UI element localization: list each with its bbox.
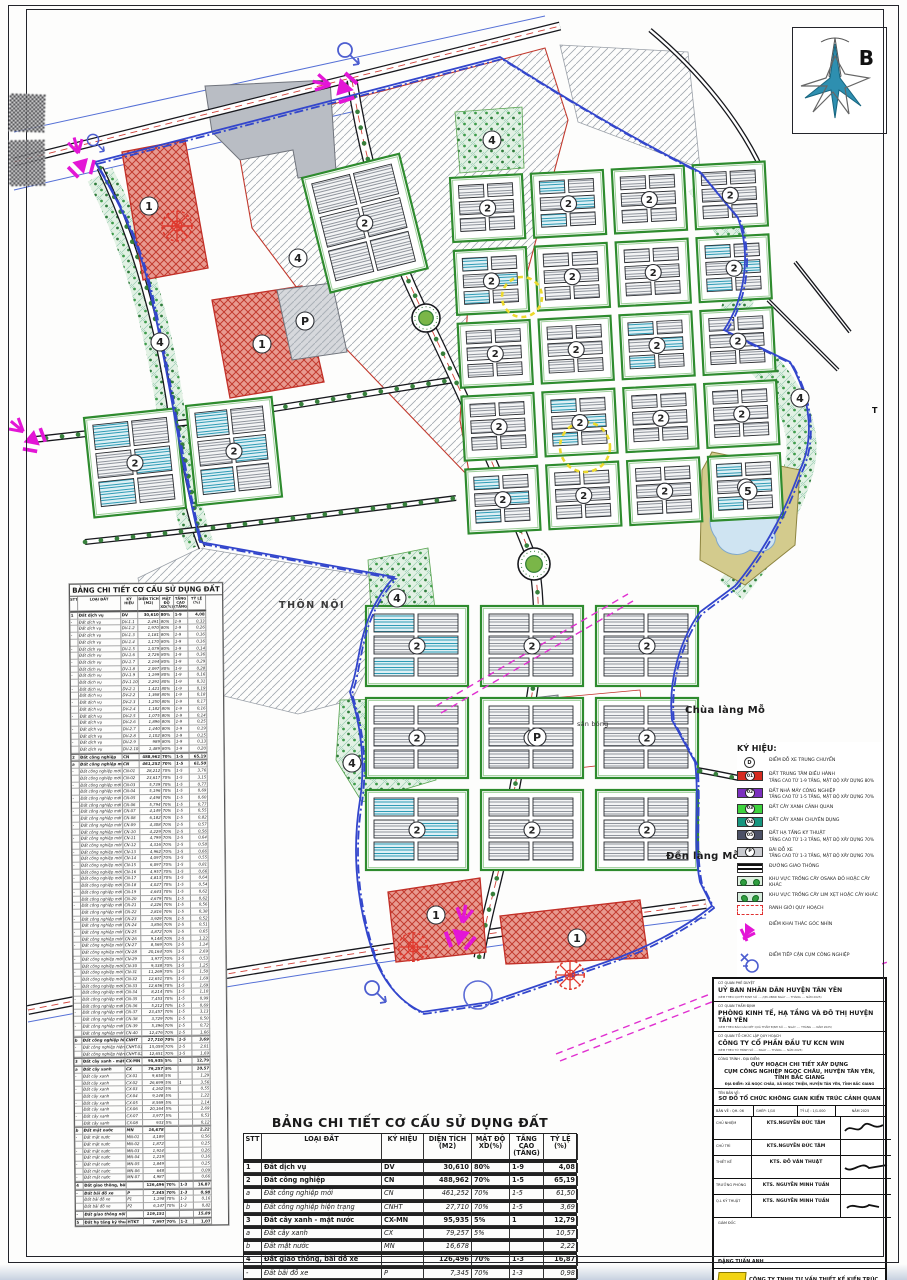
- drawing-meta-row: BẢN VẼ : QH- 06GHÉP: 1/10TỶ LỆ : 1/1.000…: [714, 1106, 885, 1117]
- svg-text:4: 4: [488, 134, 496, 147]
- symbol-wheel: [556, 961, 585, 990]
- legend-label: BÃI ĐỖ XE: [769, 848, 793, 853]
- red-swatch: 01: [737, 771, 763, 781]
- staff-role: Q.L KỸ THUẬT: [714, 1195, 752, 1218]
- col-header: STT: [244, 1134, 262, 1160]
- col-header: KÝ HIỆU: [382, 1134, 424, 1160]
- planning-org-name: CÔNG TY CỔ PHẦN ĐẦU TƯ KCN WIN: [718, 1040, 881, 1047]
- svg-text:2: 2: [361, 219, 368, 230]
- approval-agency-name: UỶ BAN NHÂN DÂN HUYỆN TÂN YÊN: [718, 987, 881, 994]
- table-row: 1Đất dịch vụDV30,61080%1-94,08: [243, 1162, 577, 1175]
- staff-name: KTS.NGUYỄN ĐỨC TÂM: [752, 1140, 841, 1156]
- zone-badge: 2: [487, 346, 503, 362]
- scan-mark: [8, 93, 45, 132]
- project-line2: CỤM CÔNG NGHIỆP NGỌC CHÂU, HUYỆN TÂN YÊN…: [718, 1069, 881, 1081]
- viewpt-icon: [737, 921, 763, 943]
- zone-badge: 2: [226, 443, 242, 459]
- svg-text:2: 2: [529, 641, 536, 652]
- summary-rows: 1Đất dịch vụDV30,61080%1-94,082Đất công …: [243, 1162, 577, 1280]
- compass-north-label: B: [859, 46, 874, 70]
- svg-text:2: 2: [499, 495, 506, 506]
- svg-text:2: 2: [492, 349, 499, 360]
- legend-item-d: DĐIỂM ĐỖ XE TRUNG CHUYỂN: [737, 757, 882, 768]
- access-icon: [737, 952, 763, 974]
- roundabout: [412, 304, 440, 332]
- svg-text:2: 2: [576, 418, 583, 429]
- purple-swatch: 02: [737, 788, 763, 798]
- zone-badge: 2: [645, 264, 661, 280]
- staff-name: KTS. NGUYỄN MINH TUẤN: [752, 1195, 841, 1218]
- zone-badge: P: [528, 728, 546, 746]
- zone-badge: 1: [568, 929, 586, 947]
- project-line3: ĐỊA ĐIỂM: XÃ NGỌC CHÂU, XÃ NGỌC THIỆN, H…: [718, 1082, 881, 1086]
- svg-text:4: 4: [393, 592, 401, 605]
- map-label: sân bóng: [577, 720, 609, 728]
- zone-badge: 2: [641, 192, 657, 208]
- svg-text:2: 2: [646, 195, 653, 206]
- legend-item-road: ĐƯỜNG GIAO THÔNG: [737, 863, 882, 873]
- zone-badge: 2: [480, 200, 496, 216]
- dark-swatch: 05: [737, 830, 763, 840]
- zone-badge: 2: [483, 273, 499, 289]
- gray-swatch: P: [737, 847, 763, 857]
- svg-text:2: 2: [565, 199, 572, 210]
- transit-stop-icon: D: [744, 757, 755, 768]
- legend-label: RANH GIỚI QUY HOẠCH: [769, 906, 824, 911]
- meta-cell: GHÉP: 1/10: [754, 1106, 798, 1116]
- zone-badge: 4: [388, 589, 406, 607]
- zone-badge: 4: [289, 249, 307, 267]
- svg-text:2: 2: [661, 487, 668, 498]
- legend-item-bound: RANH GIỚI QUY HOẠCH: [737, 905, 882, 915]
- appraisal-agency-name: PHÒNG KINH TẾ, HẠ TẦNG VÀ ĐÔ THỊ HUYỆN T…: [718, 1010, 881, 1024]
- legend-item-access: ĐIỂM TIẾP CẬN CỤM CÔNG NGHIỆP: [737, 952, 882, 974]
- company-logo: Đ: [715, 1272, 746, 1280]
- symbol-bus: [365, 981, 386, 1003]
- col-header: LOẠI ĐẤT: [262, 1134, 382, 1160]
- svg-text:4: 4: [294, 252, 302, 265]
- dots2-swatch: [737, 892, 763, 902]
- roundabout: [518, 548, 550, 580]
- scan-mark: [9, 140, 46, 187]
- svg-text:4: 4: [156, 336, 164, 349]
- zone-badge: 1: [140, 197, 158, 215]
- table-row: -Đất bãi đỗ xeP7,34570%1-30,98: [243, 1268, 577, 1280]
- zone-badge: 2: [572, 415, 588, 431]
- svg-text:1: 1: [258, 338, 266, 351]
- project-label: CÔNG TRÌNH - ĐỊA ĐIỂM:: [718, 1057, 881, 1061]
- zone-badge: 2: [639, 730, 655, 746]
- zone-badge: 2: [357, 215, 373, 231]
- svg-text:2: 2: [414, 641, 421, 652]
- col-header: TỶ LỆ (%): [188, 595, 206, 610]
- legend-label: ĐƯỜNG GIAO THÔNG: [769, 864, 819, 869]
- appraisal-agency-label: CƠ QUAN THẨM ĐỊNH: [718, 1004, 881, 1008]
- compass-rose-icon: [793, 28, 884, 130]
- drawing-title-label: TÊN BẢN VẼ:: [718, 1091, 881, 1095]
- zone-badge: 2: [409, 822, 425, 838]
- symbol-wheel: [162, 211, 192, 241]
- legend-label: ĐẤT HẠ TẦNG KỸ THUẬT: [769, 831, 825, 836]
- staff-name: KTS. NGUYỄN MINH TUẤN: [752, 1179, 841, 1195]
- svg-text:4: 4: [348, 757, 356, 770]
- bound-swatch: [737, 905, 763, 915]
- svg-text:2: 2: [738, 409, 745, 420]
- legend-label: ĐIỂM KHAI THÁC GÓC NHÌN: [769, 922, 832, 927]
- legend-item-red: 01ĐẤT TRUNG TÂM ĐIỀU HÀNHTẦNG CAO TỪ 1-9…: [737, 771, 882, 784]
- signature: [841, 1117, 891, 1140]
- svg-text:2: 2: [488, 276, 495, 287]
- landuse-detail-header: STTLOẠI ĐẤTKÝ HIỆUDIỆN TÍCH (M2)MẬT ĐỘ X…: [70, 595, 222, 611]
- svg-text:2: 2: [131, 458, 138, 469]
- landuse-summary-table: BẢNG CHI TIẾT CƠ CẤU SỬ DỤNG ĐẤT STTLOẠI…: [243, 1113, 577, 1280]
- col-header: KÝ HIỆU: [121, 596, 138, 611]
- legend-title: KÝ HIỆU:: [737, 744, 882, 753]
- symbol-wheel: [399, 933, 428, 962]
- legend-item-dark: 05ĐẤT HẠ TẦNG KỸ THUẬTTẦNG CAO TỪ 1-3 TẦ…: [737, 830, 882, 843]
- svg-text:2: 2: [496, 422, 503, 433]
- svg-text:1: 1: [573, 932, 581, 945]
- table-row: 2Đất công nghiệpCN488,96270%1-565,19: [243, 1175, 577, 1188]
- staff-role: CHỦ NHIỆM: [714, 1117, 752, 1140]
- svg-text:2: 2: [580, 491, 587, 502]
- legend-label: ĐIỂM ĐỖ XE TRUNG CHUYỂN: [769, 758, 835, 763]
- svg-text:2: 2: [644, 825, 651, 836]
- zone-badge: 1: [427, 906, 445, 924]
- appraisal-agency-note: (KÈM THEO BÁO CÁO KẾT QUẢ THẨM ĐỊNH SỐ .…: [718, 1025, 881, 1029]
- legend-item-purple: 02ĐẤT NHÀ MÁY CÔNG NGHIỆPTẦNG CAO TỪ 1-5…: [737, 788, 882, 801]
- zone-badge: 2: [409, 638, 425, 654]
- zone-badge: 2: [409, 730, 425, 746]
- signature: [841, 1140, 891, 1156]
- meta-cell: TỶ LỆ : 1/1.000: [798, 1106, 836, 1116]
- zone-badge: 2: [491, 419, 507, 435]
- zone-badge: 5: [739, 482, 757, 500]
- summary-header: STTLOẠI ĐẤTKÝ HIỆUDIỆN TÍCH (M2)MẬT ĐỘ X…: [243, 1133, 577, 1162]
- legend-item-dots2: KHU VỰC TRỒNG CÂY LIM XẸT HOẶC CÂY KHÁC: [737, 892, 882, 902]
- map-label: THÔN NỘI: [279, 599, 345, 611]
- svg-text:2: 2: [484, 203, 491, 214]
- zone-badge: 2: [649, 337, 665, 353]
- map-label: Chùa làng Mỗ: [685, 703, 765, 716]
- project-line1: QUY HOẠCH CHI TIẾT XÂY DỰNG: [718, 1062, 881, 1068]
- svg-text:1: 1: [145, 200, 153, 213]
- zone-badge: 2: [564, 269, 580, 285]
- table-row: bĐất công nghiệp hiện trạngCNHT27,71070%…: [243, 1202, 577, 1215]
- legend-label: ĐẤT CÂY XANH CẢNH QUAN: [769, 805, 833, 810]
- col-header: MẬT ĐỘ XD(%): [472, 1134, 510, 1160]
- svg-text:2: 2: [569, 272, 576, 283]
- svg-text:2: 2: [731, 264, 738, 275]
- staff-role: CHỦ TRÌ: [714, 1140, 752, 1156]
- col-header: DIỆN TÍCH (M2): [424, 1134, 472, 1160]
- approval-agency-note: (KÈM THEO QUYẾT ĐỊNH SỐ .... /QĐ-UBND NG…: [718, 995, 881, 999]
- zone-badge: P: [296, 312, 314, 330]
- legend-label: ĐIỂM TIẾP CẬN CỤM CÔNG NGHIỆP: [769, 953, 850, 958]
- zone-badge: 2: [722, 187, 738, 203]
- director-name: ĐẶNG TUẤN ANH: [718, 1260, 764, 1265]
- table-row: bĐất mặt nướcMN16,6782,22: [243, 1241, 577, 1254]
- zone-badge: 2: [653, 410, 669, 426]
- zone-badge: 2: [524, 822, 540, 838]
- col-header: TỶ LỆ (%): [544, 1134, 578, 1160]
- drawing-title: SƠ ĐỒ TỔ CHỨC KHÔNG GIAN KIẾN TRÚC CẢNH …: [718, 1096, 881, 1102]
- svg-text:2: 2: [529, 825, 536, 836]
- svg-text:2: 2: [654, 341, 661, 352]
- zone-badge: 2: [639, 822, 655, 838]
- planning-org-note: (KÈM THEO TỜ TRÌNH SỐ .... NGÀY .... THÁ…: [718, 1048, 881, 1052]
- landuse-detail-table: BẢNG CHI TIẾT CƠ CẤU SỬ DỤNG ĐẤT STTLOẠI…: [69, 582, 229, 1227]
- zone-badge: 2: [639, 638, 655, 654]
- svg-text:P: P: [301, 315, 309, 328]
- zone-badge: 2: [726, 260, 742, 276]
- table-row: 4Đất giao thông, bãi đỗ xe126,49670%1-31…: [243, 1254, 577, 1267]
- green-swatch: 03: [737, 804, 763, 814]
- legend-item-green: 03ĐẤT CÂY XANH CẢNH QUAN: [737, 804, 882, 814]
- legend-label: ĐẤT NHÀ MÁY CÔNG NGHIỆP: [769, 789, 835, 794]
- table-row: aĐất cây xanhCX79,2575%10,57: [243, 1228, 577, 1241]
- svg-text:4: 4: [796, 392, 804, 405]
- col-header: TẦNG CAO (TẦNG): [510, 1134, 544, 1160]
- zone-badge: 2: [734, 406, 750, 422]
- staff-role: THIẾT KẾ: [714, 1156, 752, 1179]
- signature: [841, 1195, 891, 1218]
- svg-text:2: 2: [727, 191, 734, 202]
- svg-text:2: 2: [650, 268, 657, 279]
- table-row: aĐất công nghiệp mớiCN461,25270%1-561,50: [243, 1188, 577, 1201]
- legend-item-teal: 04ĐẤT CÂY XANH CHUYÊN DỤNG: [737, 817, 882, 827]
- svg-text:2: 2: [573, 345, 580, 356]
- svg-text:2: 2: [734, 337, 741, 348]
- zone-badge: 2: [561, 196, 577, 212]
- legend-label: ĐẤT CÂY XANH CHUYÊN DỤNG: [769, 818, 839, 823]
- staff-rows: CHỦ NHIỆMKTS.NGUYỄN ĐỨC TÂMCHỦ TRÌKTS.NG…: [714, 1117, 885, 1218]
- table-row: 5Đất hạ tầng kỹ thuậtHTKT7,99770%1-21,07: [76, 1217, 228, 1226]
- svg-text:2: 2: [414, 825, 421, 836]
- legend-sublabel: TẦNG CAO TỪ 1-3 TẦNG, MẬT ĐỘ XÂY DỰNG 70…: [769, 837, 874, 842]
- zone-badge: 4: [343, 754, 361, 772]
- teal-swatch: 04: [737, 817, 763, 827]
- planning-org-label: CƠ QUAN TỔ CHỨC LẬP QUY HOẠCH: [718, 1034, 881, 1038]
- landuse-detail-rows: 1Đất dịch vụDV30,61080%1-94,08-Đất dịch …: [70, 610, 228, 1226]
- symbol-bus: [338, 43, 359, 65]
- road-swatch: [737, 863, 763, 873]
- col-header: STT: [70, 597, 78, 612]
- approval-agency-label: CƠ QUAN PHÊ DUYỆT: [718, 981, 881, 985]
- meta-cell: BẢN VẼ : QH- 06: [714, 1106, 754, 1116]
- plan-sheet: 2222222222222222222222222222222211114444…: [0, 0, 907, 1280]
- svg-text:2: 2: [231, 447, 238, 458]
- svg-text:1: 1: [432, 909, 440, 922]
- zone-badge: 2: [657, 483, 673, 499]
- signature: [841, 1179, 891, 1195]
- dots1-swatch: [737, 876, 763, 886]
- legend-item-viewpt: ĐIỂM KHAI THÁC GÓC NHÌN: [737, 921, 882, 943]
- zone-badge: 4: [151, 333, 169, 351]
- compass-box: B: [792, 27, 887, 134]
- zone-badge: 2: [524, 638, 540, 654]
- director-label: GIÁM ĐỐC: [718, 1221, 881, 1225]
- legend-label: ĐẤT TRUNG TÂM ĐIỀU HÀNH: [769, 772, 835, 777]
- symbol-entry: [2, 411, 50, 457]
- zone-badge: 2: [568, 342, 584, 358]
- summary-title: BẢNG CHI TIẾT CƠ CẤU SỬ DỤNG ĐẤT: [243, 1113, 577, 1133]
- svg-text:2: 2: [414, 733, 421, 744]
- legend-item-dots1: KHU VỰC TRỒNG CÂY OSAKA ĐỎ HOẶC CÂY KHÁC: [737, 876, 882, 888]
- staff-role: TRƯỞNG PHÒNG: [714, 1179, 752, 1195]
- staff-name: KTS. ĐỖ VĂN THUẬT: [752, 1156, 841, 1179]
- meta-cell: NĂM 2025: [836, 1106, 885, 1116]
- zone-badge: 2: [127, 455, 143, 471]
- signature: [841, 1156, 891, 1179]
- zone-badge: 2: [730, 333, 746, 349]
- zone-badge: 1: [253, 335, 271, 353]
- zone-badge: 2: [576, 487, 592, 503]
- zone-badge: 4: [483, 131, 501, 149]
- svg-text:5: 5: [744, 485, 752, 498]
- title-block: CƠ QUAN PHÊ DUYỆT UỶ BAN NHÂN DÂN HUYỆN …: [712, 977, 887, 1280]
- svg-text:2: 2: [644, 733, 651, 744]
- table-row: 3Đất cây xanh - mặt nướcCX-MN95,9355%112…: [243, 1215, 577, 1228]
- zone-badge: 4: [791, 389, 809, 407]
- svg-text:2: 2: [657, 414, 664, 425]
- staff-name: KTS.NGUYỄN ĐỨC TÂM: [752, 1117, 841, 1140]
- legend-sublabel: TẦNG CAO TỪ 1-3 TẦNG, MẬT ĐỘ XÂY DỰNG 70…: [769, 853, 874, 858]
- map-label: Đền làng Mỗ: [666, 849, 740, 862]
- legend-label: KHU VỰC TRỒNG CÂY OSAKA ĐỎ HOẶC CÂY KHÁC: [769, 877, 870, 888]
- col-header: LOẠI ĐẤT: [78, 596, 121, 611]
- legend-item-gray: PBÃI ĐỖ XETẦNG CAO TỪ 1-3 TẦNG, MẬT ĐỘ X…: [737, 847, 882, 860]
- legend-sublabel: TẦNG CAO TỪ 1-5 TẦNG, MẬT ĐỘ XÂY DỰNG 70…: [769, 794, 874, 799]
- col-header: MẬT ĐỘ XD(%): [160, 596, 174, 611]
- map-label: T: [872, 406, 878, 415]
- zone-badge: 2: [495, 492, 511, 508]
- legend-label: KHU VỰC TRỒNG CÂY LIM XẸT HOẶC CÂY KHÁC: [769, 893, 878, 898]
- legend-sublabel: TẦNG CAO TỪ 1-9 TẦNG, MẬT ĐỘ XÂY DỰNG 80…: [769, 778, 874, 783]
- svg-text:P: P: [533, 731, 541, 744]
- svg-text:2: 2: [644, 641, 651, 652]
- col-header: DIỆN TÍCH (M2): [138, 596, 160, 611]
- col-header: TẦNG CAO (TẦNG): [174, 596, 188, 611]
